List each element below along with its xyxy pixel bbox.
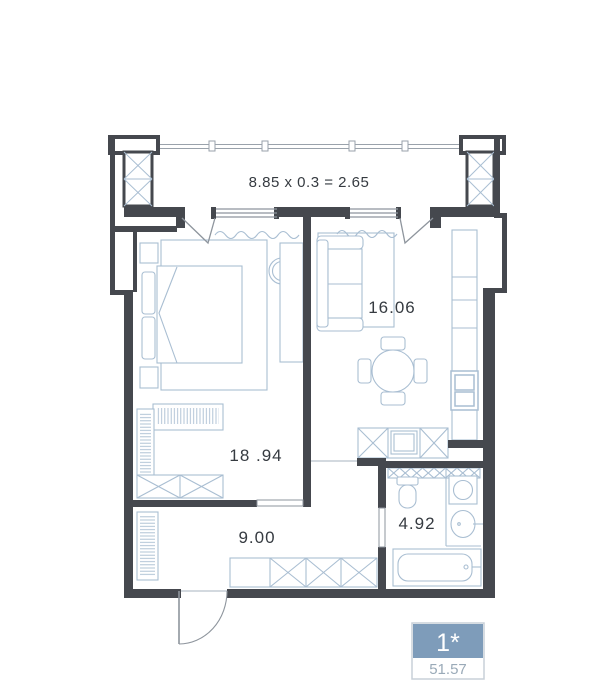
chair-bottom (381, 392, 405, 405)
hall-wardrobe (230, 558, 377, 587)
clothes-rail-vertical (137, 409, 154, 478)
entrance-door (179, 591, 227, 644)
bathroom-area-label: 4.92 (398, 514, 435, 533)
bed-pillow-bottom (142, 317, 155, 359)
balcony-railing (158, 141, 461, 151)
kitchen-counter (358, 428, 448, 458)
bedroom-doorway (257, 500, 303, 506)
bedroom-curtain (215, 232, 299, 239)
sofa (317, 236, 363, 331)
balcony: 8.85 x 0.3 = 2.65 (110, 137, 504, 206)
bedroom-area-label: 18 .94 (229, 446, 282, 465)
pillar-right (467, 152, 494, 206)
living-balcony-door (400, 218, 433, 243)
balcony-dimension-label: 8.85 x 0.3 = 2.65 (249, 174, 370, 191)
dining-table (372, 350, 414, 392)
bed (157, 266, 242, 363)
hallway-area-label: 9.00 (238, 528, 275, 547)
living-area-label: 16.06 (368, 298, 416, 317)
unit-badge: 1* 51.57 (412, 623, 484, 679)
dresser (280, 243, 303, 362)
floorplan-drawing: 8.85 x 0.3 = 2.65 (0, 0, 615, 700)
pillar-left (124, 152, 152, 206)
bathroom-doorway (379, 508, 385, 547)
oven (451, 371, 478, 410)
badge-unit-label: 1* (436, 629, 460, 657)
washing-machine (449, 476, 477, 504)
hall-closet (137, 512, 158, 580)
nightstand-bottom (140, 367, 158, 388)
toilet (397, 477, 418, 508)
badge-area-value: 51.57 (429, 661, 467, 678)
bath-sink (451, 511, 483, 538)
bed-pillow-top (142, 272, 155, 314)
nightstand-top (140, 243, 158, 263)
bathtub (393, 549, 481, 586)
bedroom-balcony-door (182, 218, 215, 243)
chair-left (358, 359, 371, 383)
chair-right (414, 359, 427, 383)
chair-top (381, 337, 405, 350)
clothes-rail-horizontal (153, 404, 223, 430)
living-room (317, 230, 478, 458)
hallway (137, 512, 377, 587)
bedroom-wardrobe (137, 475, 223, 498)
floorplan-page: 8.85 x 0.3 = 2.65 (0, 0, 615, 700)
